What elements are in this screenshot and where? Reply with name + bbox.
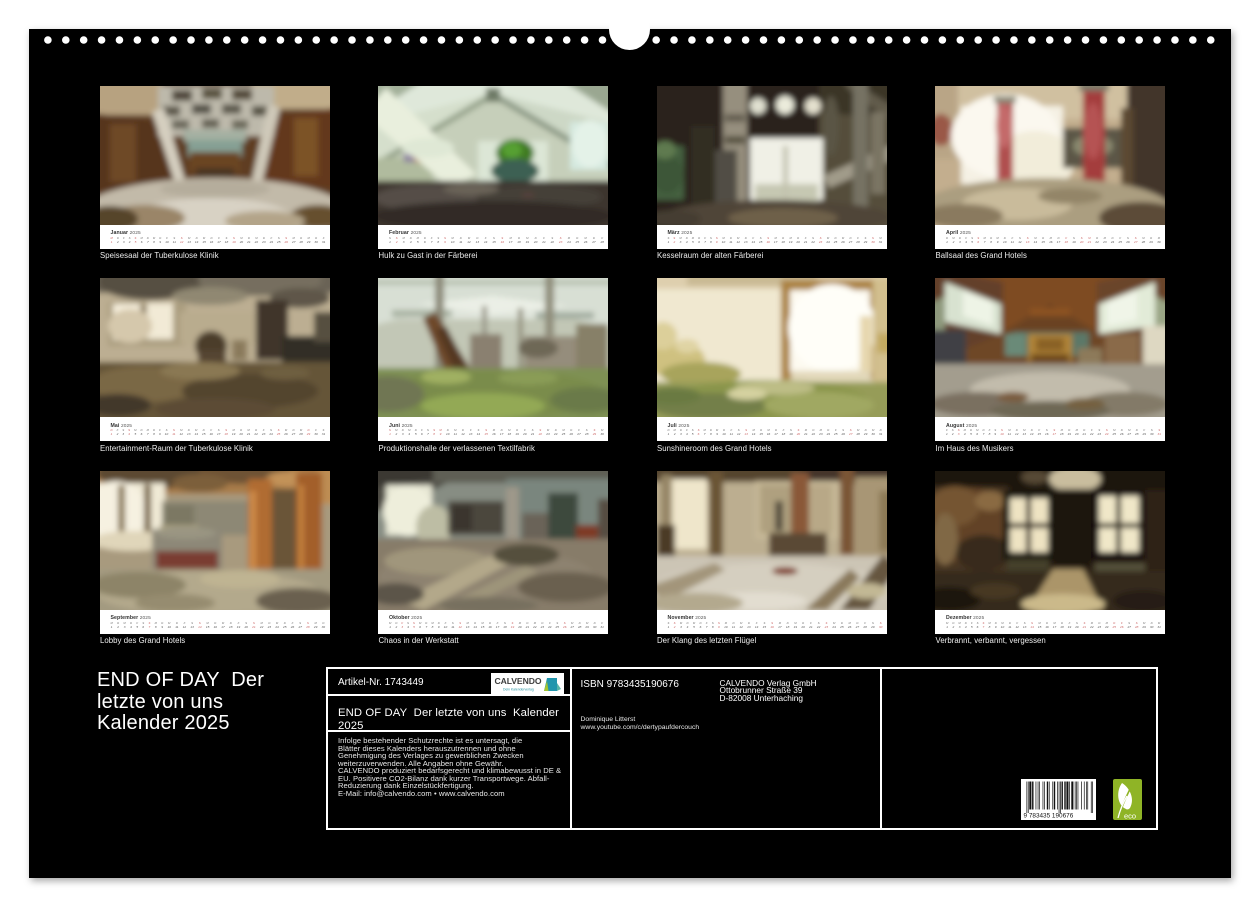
svg-text:9 783435 190676: 9 783435 190676 — [1024, 812, 1074, 819]
svg-text:eco: eco — [1124, 811, 1136, 820]
svg-text:Dein Kalenderverlag: Dein Kalenderverlag — [503, 687, 534, 691]
svg-text:CALVENDO: CALVENDO — [495, 676, 542, 686]
